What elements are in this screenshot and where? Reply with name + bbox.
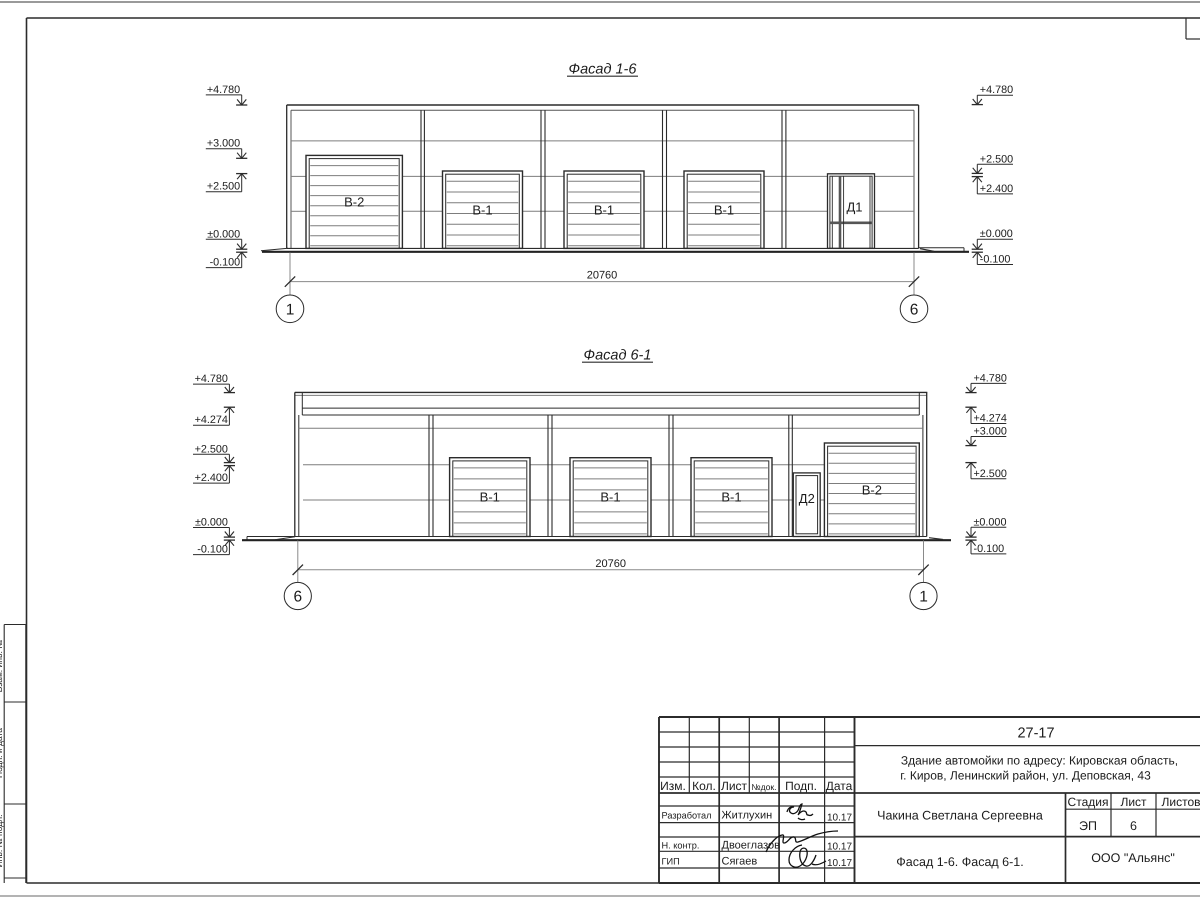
svg-text:Фасад 1-6: Фасад 1-6 (569, 61, 638, 77)
svg-text:+2.400: +2.400 (195, 472, 228, 484)
svg-text:10.17: 10.17 (827, 813, 852, 824)
svg-text:Житлухин: Житлухин (722, 810, 773, 822)
svg-text:В-1: В-1 (594, 202, 614, 217)
svg-text:+2.500: +2.500 (974, 468, 1007, 480)
svg-text:6: 6 (293, 589, 302, 606)
svg-text:+2.500: +2.500 (195, 443, 228, 455)
svg-text:Здание автомойки по адресу: Ки: Здание автомойки по адресу: Кировская об… (901, 754, 1178, 768)
svg-text:-0.100: -0.100 (210, 257, 241, 269)
svg-text:10.17: 10.17 (827, 842, 852, 853)
svg-text:ООО "Альянс": ООО "Альянс" (1091, 851, 1175, 865)
svg-text:Фасад 6-1: Фасад 6-1 (584, 347, 652, 363)
svg-text:-0.100: -0.100 (974, 543, 1005, 555)
svg-text:В-1: В-1 (600, 490, 620, 505)
svg-text:+4.780: +4.780 (207, 84, 240, 96)
svg-text:Дата: Дата (826, 779, 853, 793)
svg-text:Д2: Д2 (799, 491, 815, 506)
svg-text:-0.100: -0.100 (197, 544, 228, 556)
svg-text:ГИП: ГИП (662, 857, 680, 867)
svg-text:+4.780: +4.780 (980, 84, 1013, 96)
svg-text:г. Киров, Ленинский район, ул.: г. Киров, Ленинский район, ул. Деповская… (900, 768, 1151, 782)
svg-text:Изм.: Изм. (660, 779, 686, 793)
svg-text:1: 1 (286, 301, 295, 318)
svg-text:+4.274: +4.274 (195, 414, 228, 426)
svg-text:Фасад 1-6. Фасад 6-1.: Фасад 1-6. Фасад 6-1. (896, 855, 1023, 869)
svg-text:Инв. № подл.: Инв. № подл. (0, 815, 4, 868)
svg-text:20760: 20760 (595, 558, 626, 570)
svg-text:В-2: В-2 (862, 482, 882, 497)
svg-text:6: 6 (910, 301, 919, 318)
svg-text:+3.000: +3.000 (207, 138, 240, 150)
svg-text:10.17: 10.17 (827, 858, 852, 869)
svg-text:27-17: 27-17 (1017, 726, 1054, 742)
svg-text:+2.500: +2.500 (207, 181, 240, 193)
svg-text:+2.500: +2.500 (980, 153, 1013, 165)
svg-text:±0.000: ±0.000 (980, 228, 1013, 240)
svg-text:±0.000: ±0.000 (207, 228, 240, 240)
svg-text:В-1: В-1 (714, 202, 734, 217)
svg-text:Двоеглазов: Двоеглазов (722, 839, 781, 851)
svg-text:+3.000: +3.000 (974, 426, 1007, 438)
svg-text:Д1: Д1 (846, 200, 862, 215)
svg-text:+4.274: +4.274 (974, 413, 1007, 425)
svg-text:±0.000: ±0.000 (974, 516, 1007, 528)
svg-text:В-1: В-1 (480, 490, 500, 505)
svg-text:Сягаев: Сягаев (722, 856, 758, 868)
svg-text:Чакина Светлана Сергеевна: Чакина Светлана Сергеевна (877, 809, 1043, 823)
svg-text:Лист: Лист (1120, 795, 1147, 809)
svg-text:1: 1 (919, 589, 928, 606)
svg-text:В-1: В-1 (721, 490, 741, 505)
svg-text:Подп.: Подп. (785, 779, 817, 793)
svg-text:В-1: В-1 (472, 202, 492, 217)
svg-text:+4.780: +4.780 (195, 373, 228, 385)
svg-text:ЭП: ЭП (1079, 819, 1097, 833)
svg-text:6: 6 (1130, 819, 1137, 833)
svg-text:Лист: Лист (721, 779, 748, 793)
svg-text:+2.400: +2.400 (980, 183, 1013, 195)
svg-text:+4.780: +4.780 (974, 372, 1007, 384)
svg-text:Н. контр.: Н. контр. (662, 840, 700, 850)
svg-text:№док.: №док. (751, 782, 776, 792)
svg-text:Подп. и дата: Подп. и дата (0, 728, 4, 778)
svg-text:В-2: В-2 (344, 195, 364, 210)
svg-text:Кол.: Кол. (692, 779, 716, 793)
svg-text:±0.000: ±0.000 (195, 517, 228, 529)
svg-text:20760: 20760 (587, 270, 618, 282)
svg-text:Разработал: Разработал (662, 811, 712, 821)
svg-text:Взам. инв. №: Взам. инв. № (0, 640, 4, 693)
svg-text:-0.100: -0.100 (980, 254, 1011, 266)
svg-text:Стадия: Стадия (1068, 795, 1109, 809)
svg-text:Листов: Листов (1162, 795, 1200, 809)
